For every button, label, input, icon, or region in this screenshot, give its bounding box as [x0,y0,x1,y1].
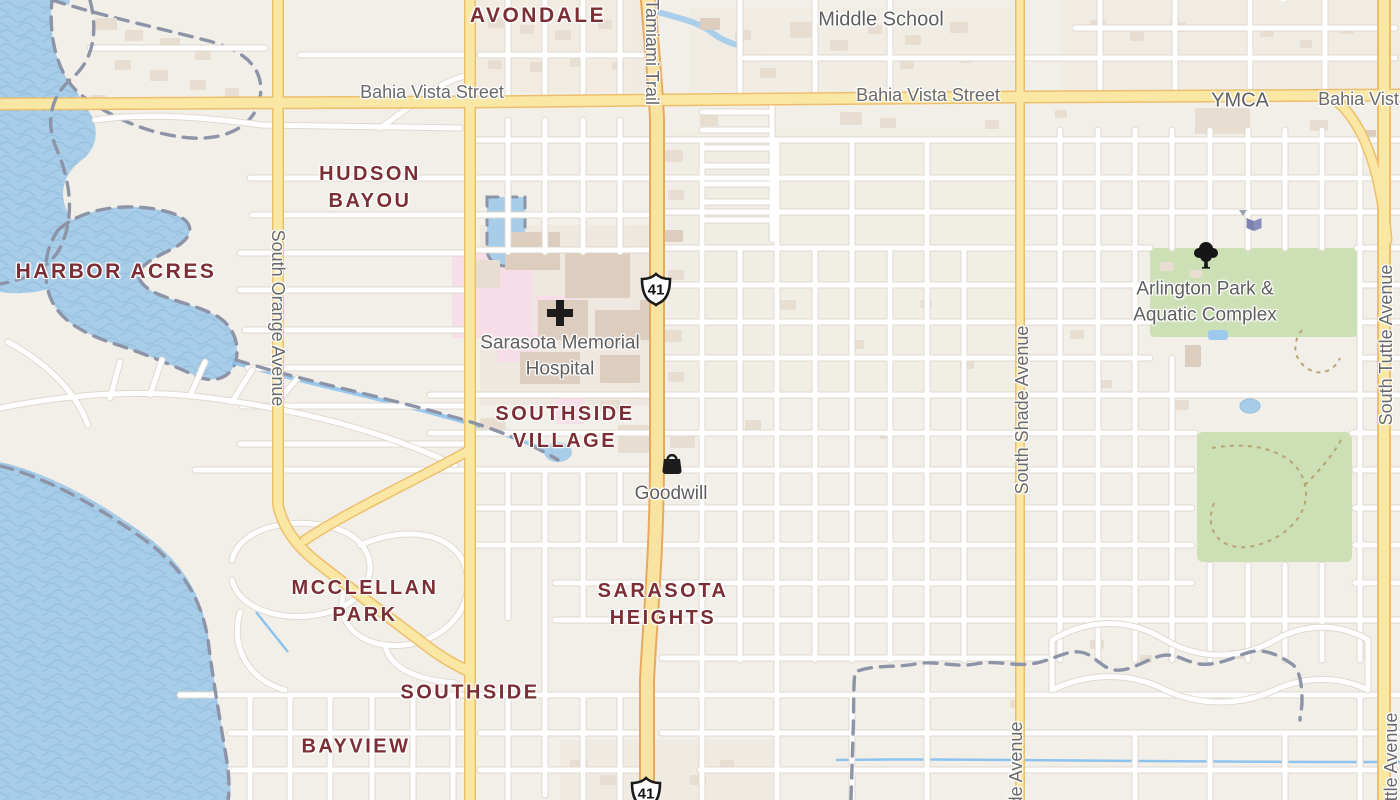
tree-icon[interactable] [1192,240,1220,277]
us-41-shield: 41 [638,272,674,313]
us-41-shield-south: 41 [628,776,664,800]
svg-text:41: 41 [648,282,665,299]
hospital-cross-icon[interactable] [545,298,575,333]
shopping-bag-icon[interactable] [661,450,683,481]
svg-text:41: 41 [638,786,655,800]
map-pointer-icon [1238,204,1248,222]
map-canvas[interactable]: AVONDALE HUDSON BAYOU HARBOR ACRES SOUTH… [0,0,1400,800]
map-base-layer [0,0,1400,800]
